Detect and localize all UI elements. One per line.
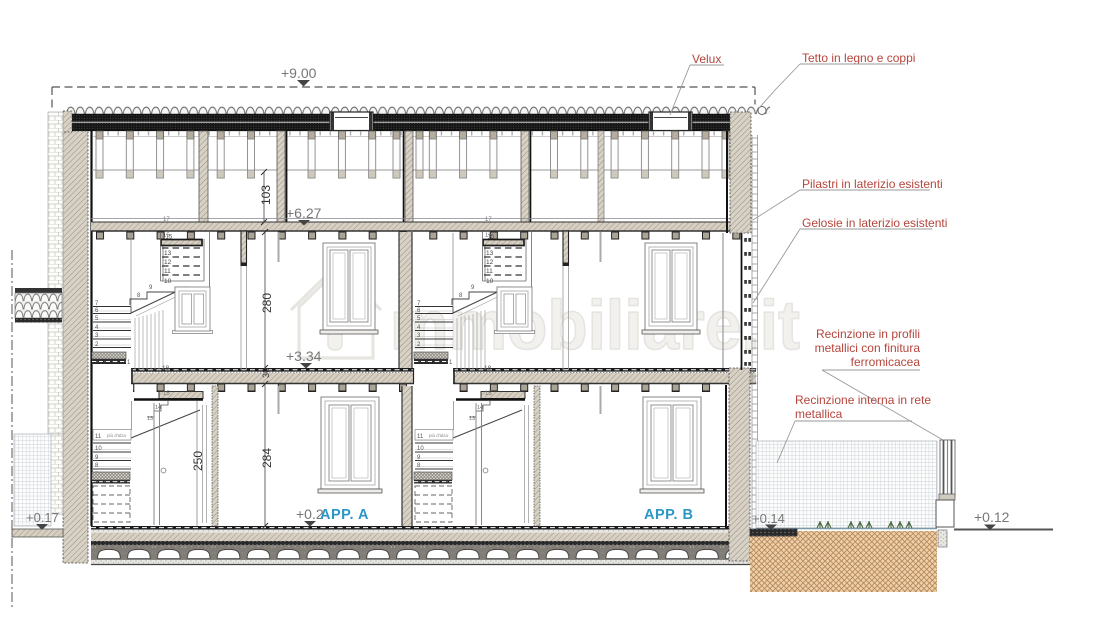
svg-text:metallica: metallica	[795, 407, 843, 421]
svg-text:+3.34: +3.34	[286, 348, 322, 364]
svg-text:Recinzione interna in rete: Recinzione interna in rete	[795, 393, 931, 407]
svg-text:mmobiliare.it: mmobiliare.it	[390, 286, 800, 364]
svg-text:Pilastri in laterizio esistent: Pilastri in laterizio esistenti	[802, 177, 943, 191]
svg-text:11: 11	[95, 434, 102, 440]
svg-text:+0.17: +0.17	[26, 510, 59, 525]
svg-text:APP. A: APP. A	[320, 507, 369, 523]
svg-text:+9.00: +9.00	[281, 65, 317, 81]
svg-text:Tetto in legno e coppi: Tetto in legno e coppi	[802, 51, 915, 65]
svg-text:+0.12: +0.12	[974, 509, 1010, 525]
svg-text:13: 13	[147, 416, 153, 422]
svg-text:+6.27: +6.27	[286, 205, 322, 221]
svg-text:103: 103	[259, 185, 273, 205]
svg-text:Gelosie in laterizio esistenti: Gelosie in laterizio esistenti	[802, 216, 947, 230]
svg-text:30: 30	[261, 368, 271, 378]
svg-text:12: 12	[164, 259, 172, 266]
svg-text:Velux: Velux	[692, 52, 721, 66]
svg-text:10: 10	[95, 446, 102, 452]
svg-text:11: 11	[164, 268, 171, 275]
svg-text:13: 13	[164, 250, 172, 257]
svg-text:15: 15	[163, 391, 170, 397]
svg-text:più d'alza: più d'alza	[107, 433, 126, 438]
svg-text:284: 284	[260, 448, 274, 468]
svg-text:250: 250	[191, 451, 205, 471]
svg-text:18: 18	[162, 365, 170, 372]
svg-text:Recinzione in profili: Recinzione in profili	[816, 327, 920, 341]
svg-text:15: 15	[485, 233, 492, 239]
svg-text:15: 15	[485, 391, 492, 397]
svg-text:10: 10	[164, 278, 172, 285]
svg-text:APP. B: APP. B	[644, 507, 693, 523]
svg-text:17: 17	[485, 217, 492, 223]
svg-text:280: 280	[260, 293, 274, 313]
svg-text:15: 15	[163, 233, 170, 239]
svg-text:17: 17	[163, 217, 170, 223]
svg-text:metallici con finitura: metallici con finitura	[815, 341, 921, 355]
svg-text:+0.14: +0.14	[752, 511, 785, 526]
svg-text:ferromicacea: ferromicacea	[851, 355, 921, 369]
svg-text:14: 14	[155, 405, 161, 411]
